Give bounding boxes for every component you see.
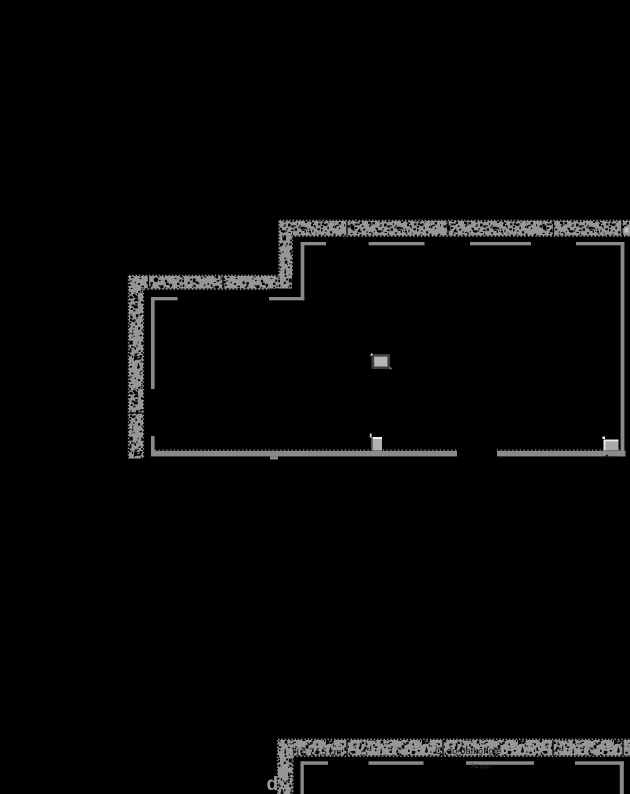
svg-text:H = 74,5 cm: H = 74,5 cm bbox=[293, 747, 342, 757]
svg-text:Cl.do balkonoje: Cl.do balkonoje bbox=[435, 746, 502, 756]
svg-text:74 cm: 74 cm bbox=[470, 762, 490, 771]
svg-text:d: d bbox=[267, 774, 279, 794]
